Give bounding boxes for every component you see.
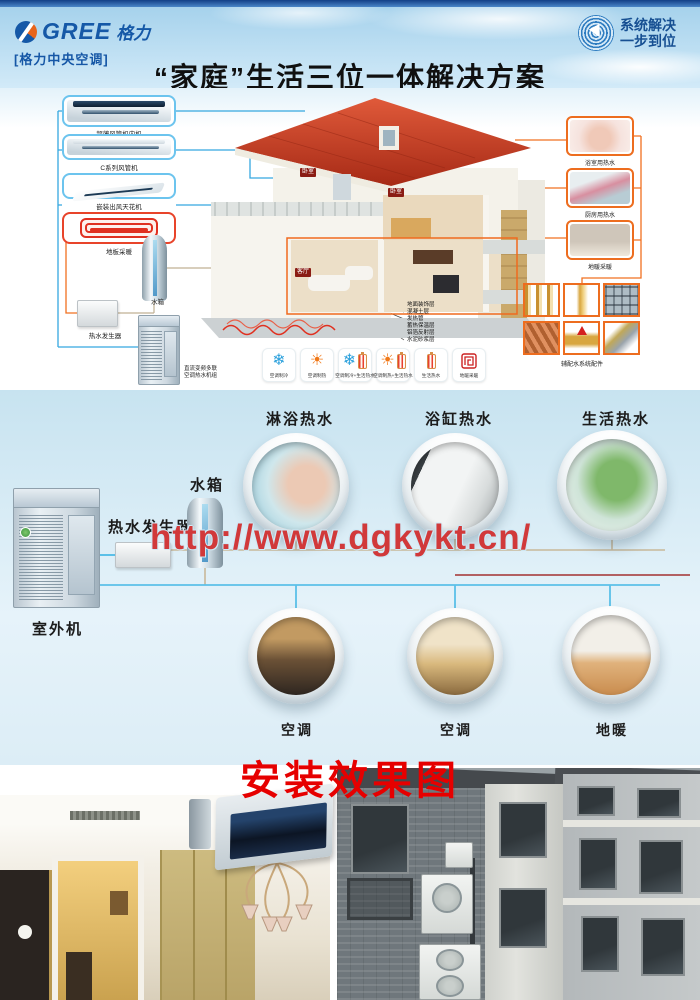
circle-label: 淋浴热水	[266, 408, 334, 429]
circle-label: 空调	[440, 720, 472, 740]
photo-label: 地暖采暖	[566, 262, 634, 271]
luxury-room-photo	[416, 617, 494, 695]
header-sky: GREE 格力 [格力中央空调] 系统解决 一步到位 “家庭”生活三位一体解决方…	[0, 7, 700, 88]
circle-label: 空调	[281, 720, 313, 740]
sun-icon: ☀	[380, 353, 394, 369]
photo-card-kitchen	[566, 168, 634, 208]
window	[351, 804, 409, 874]
duct-unit-image	[67, 100, 171, 122]
brand-text: GREE	[42, 18, 111, 45]
photo-card-family-floor	[566, 220, 634, 260]
window	[641, 918, 685, 976]
lily-flower	[18, 925, 32, 939]
mode-card-heating: ☀ 空调制热	[300, 348, 334, 382]
doorway	[52, 855, 144, 1000]
cassette-unit-image	[72, 183, 166, 202]
floor-heating-circle	[562, 606, 660, 704]
facade-trim	[563, 898, 700, 905]
window	[581, 916, 619, 972]
top-blue-bar	[0, 0, 700, 7]
water-tank-image	[142, 235, 167, 301]
floor-coil-icon	[461, 353, 477, 369]
floor-layer-label: 地面装饰层	[407, 302, 435, 309]
mode-card-hotwater: 生活热水	[414, 348, 448, 382]
angle-valve-photo	[603, 321, 640, 355]
circle-label: 地暖	[596, 720, 628, 740]
baby-bath-photo	[570, 120, 630, 152]
badge-text: 系统解决 一步到位	[620, 17, 676, 49]
floor-layer-label: 铝箔反射层	[407, 330, 435, 337]
one-touch-icon	[578, 15, 614, 51]
room-label: 卧室	[300, 168, 316, 177]
snowflake-icon: ❄	[272, 353, 285, 369]
copper-pipes-photo	[523, 321, 560, 355]
ball-valve-photo	[563, 321, 600, 355]
door-furniture	[66, 952, 92, 1000]
wood-floor-photo	[571, 615, 651, 695]
domestic-water-circle	[557, 430, 667, 540]
door-furniture	[110, 891, 128, 915]
window	[639, 840, 683, 894]
ac-circle-1	[248, 608, 344, 704]
manifold-photo	[523, 283, 560, 317]
outdoor-unit-label: 室外机	[32, 618, 83, 639]
ac-outdoor-unit	[421, 874, 473, 934]
bathtub-photo	[411, 442, 499, 530]
house-illustration	[183, 90, 545, 348]
gree-poster: { "header": { "brand": "GREE", "brand_sc…	[0, 0, 700, 1000]
window	[499, 802, 547, 858]
floor-layer-label: 蓄热保温层	[407, 323, 435, 330]
duct-unit-image	[67, 139, 171, 155]
window	[499, 888, 547, 948]
duct-front-panel	[230, 802, 327, 859]
outdoor-unit-image	[138, 315, 180, 385]
balcony-rail	[347, 878, 413, 920]
water-heater-icon	[358, 354, 367, 369]
tank-label: 水箱	[145, 296, 170, 306]
product-label: C系列风管机	[62, 162, 176, 172]
room-label: 客厅	[295, 268, 311, 277]
snowflake-icon: ❄	[343, 353, 356, 369]
photo-label: 浴室用热水	[566, 158, 634, 167]
floor-layer-label: 水泥砂浆层	[407, 337, 435, 344]
heating-coil-image	[90, 228, 148, 232]
house-diagram-section: 卧室 卧室 客厅 超薄风管机内机 C系列风管机 嵌装出风天花机 地板采暖 水箱 …	[0, 88, 700, 390]
eco-badge-icon	[20, 527, 31, 538]
shower-photo	[252, 442, 340, 530]
outdoor-unit-large	[13, 488, 100, 608]
mode-card-cooling-hotwater: ❄ 空调制冷+生活热水	[338, 348, 372, 382]
mode-card-heating-hotwater: ☀ 空调制热+生活热水	[376, 348, 410, 382]
ac-outdoor-unit-large	[419, 944, 481, 1000]
circle-label: 生活热水	[582, 408, 650, 429]
gree-logo-icon	[15, 21, 37, 43]
filter-valve-photo	[563, 283, 600, 317]
product-label: 嵌装出风天花机	[62, 201, 176, 211]
valve-handle	[577, 326, 587, 335]
vegetable-washing-photo	[566, 439, 658, 531]
window	[579, 838, 617, 890]
hot-water-system-section: 室外机 热水发生器 水箱 淋浴热水 浴缸热水 生活热水 空调 空调 地暖 htt…	[0, 390, 700, 765]
floor-layer-label: 发热管	[407, 316, 424, 323]
mode-card-cooling: ❄ 空调制冷	[262, 348, 296, 382]
ceiling-vent-grille	[70, 811, 140, 820]
circle-label: 浴缸热水	[425, 408, 493, 429]
photo-label: 厨房用热水	[566, 210, 634, 219]
ac-outdoor-unit-small	[445, 842, 473, 868]
watermark-url: http://www.dgkykt.cn/	[150, 518, 531, 558]
system-badge: 系统解决 一步到位	[578, 15, 676, 51]
mode-card-floorheat: 地暖采暖	[452, 348, 486, 382]
hot-water-generator-image	[77, 300, 118, 327]
facade-trim	[563, 820, 700, 827]
pipe-clips-photo	[603, 283, 640, 317]
product-card-duct-slim	[62, 95, 176, 127]
family-floor-photo	[570, 224, 630, 256]
living-room-photo	[257, 617, 335, 695]
water-heater-icon	[397, 354, 406, 369]
duct-end-cap	[189, 799, 211, 849]
room-label: 卧室	[388, 188, 404, 197]
floor-layer-label: 混凝土层	[407, 309, 429, 316]
water-heater-icon	[427, 354, 436, 369]
outdoor-unit-label: 直流变频多联 空调热水机组	[184, 366, 217, 380]
kitchen-photo	[570, 172, 630, 204]
brand-script-text: 格力	[116, 19, 150, 44]
accessories-label: 辅配水系统配件	[548, 359, 616, 368]
tank-label: 水箱	[190, 474, 224, 495]
installation-heading: 安装效果图	[0, 748, 700, 806]
product-card-cassette	[62, 173, 176, 199]
ac-circle-2	[407, 608, 503, 704]
gree-logo: GREE 格力	[15, 18, 150, 45]
product-card-duct-c	[62, 134, 176, 160]
photo-card-baby-bath	[566, 116, 634, 156]
sun-icon: ☀	[310, 353, 324, 369]
